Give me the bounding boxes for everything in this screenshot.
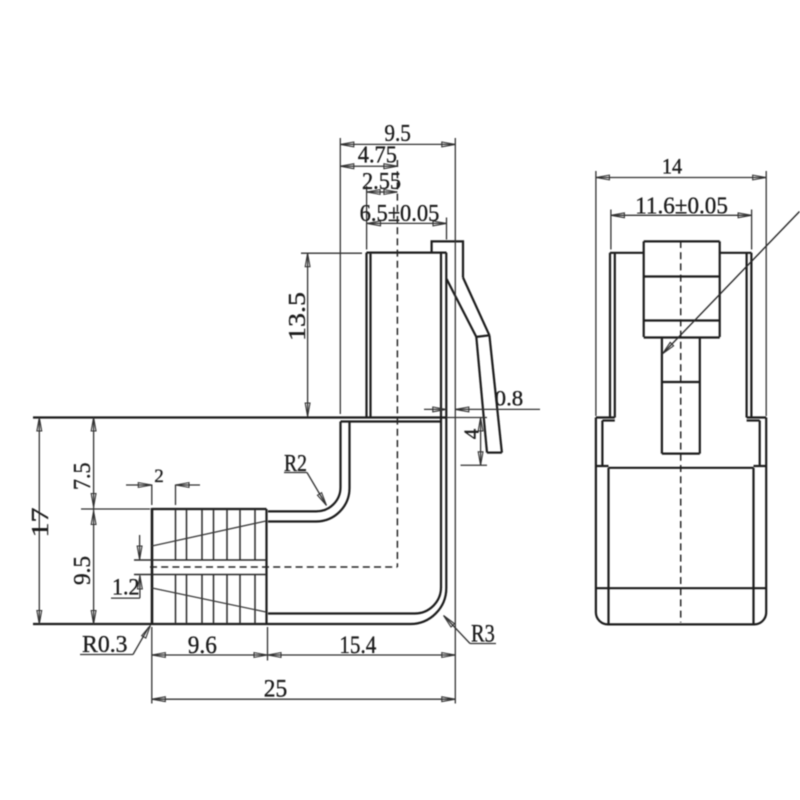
svg-text:R0.3: R0.3	[82, 632, 128, 658]
svg-text:2.55: 2.55	[362, 169, 401, 195]
svg-text:R2: R2	[284, 451, 307, 477]
svg-text:R3: R3	[471, 621, 495, 648]
svg-text:1.2: 1.2	[112, 575, 140, 600]
svg-text:6.5±0.05: 6.5±0.05	[360, 201, 440, 227]
svg-text:4.75: 4.75	[358, 143, 397, 169]
svg-text:15.4: 15.4	[339, 632, 376, 659]
svg-text:9.5: 9.5	[70, 556, 96, 585]
svg-text:14: 14	[662, 154, 682, 179]
svg-text:0.8: 0.8	[495, 386, 524, 411]
svg-text:7.5: 7.5	[70, 463, 96, 491]
svg-text:2: 2	[154, 466, 164, 487]
svg-text:13.5: 13.5	[285, 292, 311, 341]
svg-text:17: 17	[28, 508, 54, 538]
svg-text:25: 25	[264, 676, 287, 703]
svg-text:11.6±0.05: 11.6±0.05	[635, 194, 728, 220]
svg-text:4: 4	[460, 428, 484, 439]
svg-text:9.6: 9.6	[188, 632, 217, 659]
